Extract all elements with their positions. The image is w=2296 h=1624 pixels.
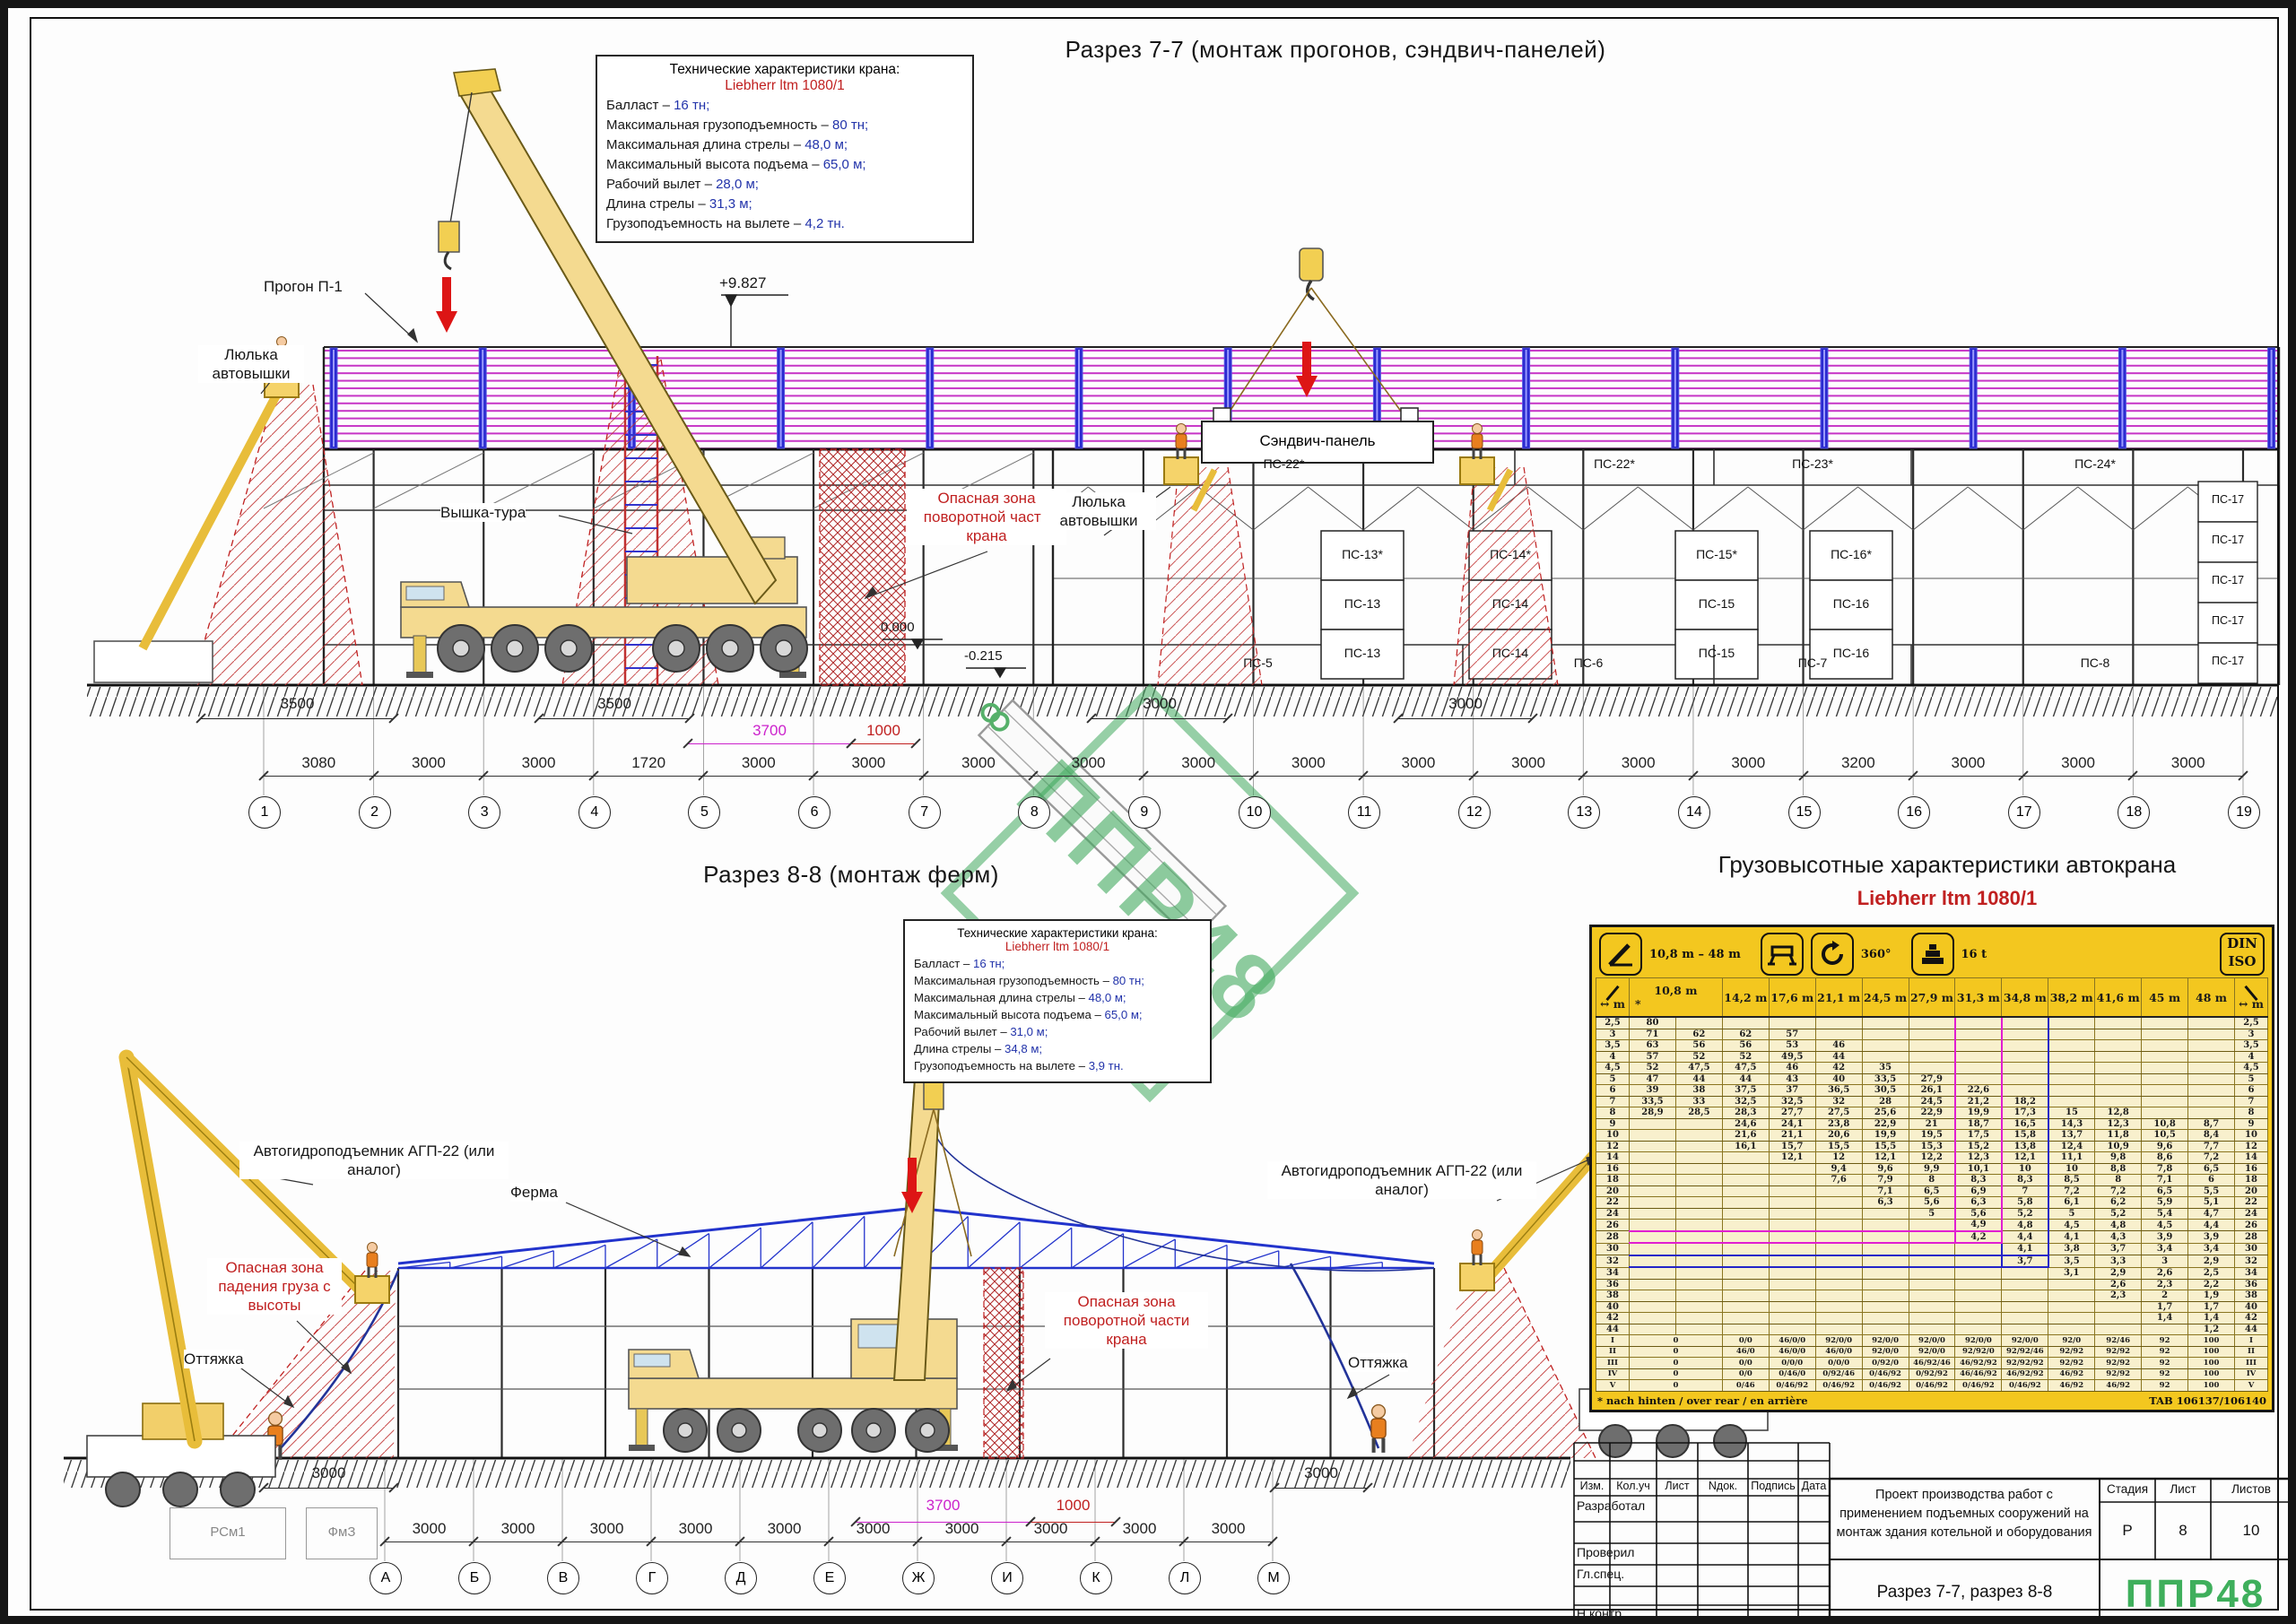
load-cell: 100 <box>2188 1380 2235 1392</box>
load-cell: 30,5 <box>1862 1085 1909 1097</box>
tb-col-4: Подпись <box>1748 1480 1798 1492</box>
load-cell <box>1955 1073 2002 1085</box>
load-cell: 0 <box>1630 1368 1723 1380</box>
specs-heading-88: Технические характеристики крана: <box>914 926 1201 940</box>
footing-rsm1: РСм1 <box>170 1507 286 1559</box>
axis77-2: 2 <box>359 796 391 829</box>
load-cell: 44 <box>1596 1324 1630 1335</box>
load-cell: 2,3 <box>2142 1279 2188 1290</box>
panel-bottom-3: ПС-8 <box>2055 656 2135 670</box>
panel-stack: ПС-14 <box>1469 596 1552 611</box>
load-cell: I <box>1596 1335 1630 1347</box>
load-cell: 38 <box>1596 1290 1630 1302</box>
agp-label-right: Автогидроподъемник АГП-22 (или аналог) <box>1267 1161 1536 1199</box>
boom-range-text: 10,8 m – 48 m <box>1649 948 1741 961</box>
load-cell: 43 <box>1769 1073 1815 1085</box>
load-cell: 46/92 <box>2048 1380 2095 1392</box>
panel-stack: ПС-15 <box>1675 596 1758 611</box>
load-table: ↔ m10,8 m*14,2 m17,6 m21,1 m24,5 m27,9 m… <box>1596 977 2268 1392</box>
load-cell: 92/92 <box>2095 1368 2142 1380</box>
load-cell: 47,5 <box>1675 1063 1722 1074</box>
dim88-3000r-label: 3000 <box>1274 1464 1368 1482</box>
load-cell <box>1862 1324 1909 1335</box>
load-cell: 33,5 <box>1630 1096 1676 1107</box>
load-cell <box>1630 1118 1676 1130</box>
load-cell <box>1955 1040 2002 1052</box>
spec-item: Балласт – 16 тн; <box>606 96 963 116</box>
dim77-3000a-label: 3000 <box>1091 695 1228 713</box>
load-cell: 15,2 <box>1955 1141 2002 1152</box>
chain88-label: 3000 <box>829 1520 918 1538</box>
load-cell: ↔ m <box>1596 978 1630 1018</box>
axis77-10: 10 <box>1239 796 1271 829</box>
load-cell: IV <box>1596 1368 1630 1380</box>
load-cell: 45 m <box>2142 978 2188 1018</box>
load-cell <box>1630 1130 1676 1142</box>
load-cell: 56 <box>1675 1040 1722 1052</box>
load-cell: 92 <box>2142 1368 2188 1380</box>
tb-sheets-label: Листов <box>2211 1482 2292 1496</box>
load-cell: 92/0/0 <box>1862 1335 1909 1347</box>
load-cell: 92/0 <box>2048 1335 2095 1347</box>
load-cell: 27,7 <box>1769 1107 1815 1119</box>
load-cell: 14 <box>2235 1152 2268 1164</box>
load-cell <box>1955 1324 2002 1335</box>
load-cell: 17,6 m <box>1769 978 1815 1018</box>
load-cell: V <box>1596 1380 1630 1392</box>
load-cell: IV <box>2235 1368 2268 1380</box>
load-cell: 0/46/92 <box>1909 1380 1955 1392</box>
load-cell <box>1862 1051 1909 1063</box>
panel-right: ПС-17 <box>2198 493 2257 506</box>
load-cell <box>2142 1324 2188 1335</box>
load-cell: 3,8 <box>2048 1243 2095 1255</box>
load-cell: 46 <box>1815 1040 1862 1052</box>
load-cell <box>1769 1243 1815 1255</box>
tb-logo: ППР48 <box>2100 1572 2292 1617</box>
load-cell: 34,8 m <box>2002 978 2048 1018</box>
load-cell: 22,9 <box>1862 1118 1909 1130</box>
load-cell: 92/92/0 <box>1955 1346 2002 1358</box>
specs-crane-name: Liebherr ltm 1080/1 <box>606 78 963 94</box>
load-cell <box>2188 1051 2235 1063</box>
load-cell <box>2142 1096 2188 1107</box>
load-cell: 46/92/92 <box>2002 1368 2048 1380</box>
tb-stage: Р <box>2100 1522 2155 1540</box>
load-cell: II <box>2235 1346 2268 1358</box>
axis88-Е: Е <box>813 1562 846 1594</box>
load-cell: 4,5 <box>2048 1220 2095 1231</box>
load-cell <box>2188 1096 2235 1107</box>
load-cell <box>1769 1185 1815 1197</box>
load-cell: 28 <box>2235 1231 2268 1244</box>
load-cell: 3,7 <box>2095 1243 2142 1255</box>
tb-sheet: 8 <box>2155 1522 2211 1540</box>
load-cell: 15,8 <box>2002 1130 2048 1142</box>
load-cell <box>2048 1017 2095 1029</box>
load-cell: 3,3 <box>2095 1255 2142 1268</box>
load-cell <box>1630 1324 1676 1335</box>
danger-fall-label: Опасная зона падения груза с высоты <box>207 1258 342 1315</box>
load-cell: 57 <box>1769 1029 1815 1040</box>
load-cell: 3,4 <box>2188 1243 2235 1255</box>
load-cell <box>1909 1017 1955 1029</box>
tb-col-5: Дата <box>1798 1480 1830 1492</box>
load-chart-icons: 10,8 m – 48 m 360° 16 t DIN ISO <box>1596 931 2268 977</box>
load-cell <box>1815 1243 1862 1255</box>
load-cell <box>2002 1085 2048 1097</box>
load-cell: 46/92 <box>2095 1380 2142 1392</box>
load-cell <box>2142 1017 2188 1029</box>
load-cell <box>1769 1324 1815 1335</box>
load-cell: 41,6 m <box>2095 978 2142 1018</box>
load-cell: 8,4 <box>2188 1130 2235 1142</box>
load-chart: 10,8 m – 48 m 360° 16 t DIN ISO ↔ m10,8 … <box>1589 925 2274 1412</box>
spec-item: Максимальный высота подъема – 65,0 м; <box>606 155 963 175</box>
load-cell: 30 <box>2235 1243 2268 1255</box>
chain77-label: 3000 <box>483 754 594 772</box>
load-cell: 36 <box>2235 1279 2268 1290</box>
load-cell <box>1769 1163 1815 1175</box>
tb-stage-label: Стадия <box>2100 1482 2155 1496</box>
load-cell: 2,6 <box>2095 1279 2142 1290</box>
load-chart-title: Грузовысотные характеристики автокрана <box>1649 851 2245 879</box>
load-cell: 3,9 <box>2188 1231 2235 1244</box>
load-cell: 5,6 <box>1909 1197 1955 1209</box>
load-cell <box>1909 1243 1955 1255</box>
load-cell <box>2095 1029 2142 1040</box>
load-cell: 6 <box>2188 1175 2235 1186</box>
load-cell: 7,7 <box>2188 1141 2235 1152</box>
load-cell <box>2142 1107 2188 1119</box>
chain88-label: 3000 <box>474 1520 562 1538</box>
load-cell <box>2048 1313 2095 1324</box>
load-cell: 11,8 <box>2095 1130 2142 1142</box>
load-cell: 4,9 <box>1955 1220 2002 1231</box>
load-cell: 32,5 <box>1722 1096 1769 1107</box>
load-cell: 100 <box>2188 1346 2235 1358</box>
load-cell <box>2095 1324 2142 1335</box>
load-cell <box>2188 1029 2235 1040</box>
dim77-3000b-line <box>1398 718 1533 719</box>
load-cell <box>1675 1267 1722 1279</box>
load-cell: 7,2 <box>2095 1185 2142 1197</box>
load-cell: 3,5 <box>2048 1255 2095 1268</box>
load-cell <box>2048 1085 2095 1097</box>
axis88-Б: Б <box>458 1562 491 1594</box>
load-cell: 71 <box>1630 1029 1676 1040</box>
load-cell <box>1769 1197 1815 1209</box>
load-cell <box>1722 1290 1769 1302</box>
load-cell <box>2095 1096 2142 1107</box>
load-cell <box>1862 1255 1909 1268</box>
load-cell: 20 <box>1596 1185 1630 1197</box>
load-cell: 12,2 <box>1909 1152 1955 1164</box>
load-cell <box>2188 1107 2235 1119</box>
panel-right: ПС-17 <box>2198 574 2257 586</box>
load-cell <box>1675 1197 1722 1209</box>
load-cell <box>1862 1220 1909 1231</box>
load-cell: 92/92 <box>2095 1358 2142 1369</box>
load-cell: 8,7 <box>2188 1118 2235 1130</box>
load-cell: 26 <box>2235 1220 2268 1231</box>
load-cell: 4,3 <box>2095 1231 2142 1244</box>
telescopic-boom-icon <box>1599 933 1642 976</box>
tb-sheets: 10 <box>2211 1522 2292 1540</box>
axis77-14: 14 <box>1678 796 1710 829</box>
load-cell <box>1815 1301 1862 1313</box>
panel-top-3: ПС-24* <box>2055 456 2135 471</box>
footing-fm3: ФмЗ <box>306 1507 378 1559</box>
load-cell: 21,2 <box>1955 1096 2002 1107</box>
load-cell: 12,3 <box>1955 1152 2002 1164</box>
specs-heading: Технические характеристики крана: <box>606 62 963 78</box>
load-cell: 9 <box>1596 1118 1630 1130</box>
load-cell <box>2095 1301 2142 1313</box>
load-cell: 26,1 <box>1909 1085 1955 1097</box>
load-cell: 0/46/92 <box>1955 1380 2002 1392</box>
tb-col-0: Изм. <box>1574 1480 1610 1492</box>
load-cell <box>1722 1243 1769 1255</box>
load-cell <box>1815 1208 1862 1220</box>
load-cell: 12,1 <box>1769 1152 1815 1164</box>
note-left: * nach hinten / over rear / en arrière <box>1597 1394 1808 1407</box>
specs-items-77: Балласт – 16 тн;Максимальная грузоподъем… <box>606 96 963 234</box>
tb-role-1: Проверил <box>1577 1545 1634 1559</box>
load-cell: 21,6 <box>1722 1130 1769 1142</box>
load-cell: 37,5 <box>1722 1085 1769 1097</box>
load-cell: 22 <box>1596 1197 1630 1209</box>
load-cell <box>1909 1255 1955 1268</box>
load-cell <box>2188 1085 2235 1097</box>
axis88-И: И <box>991 1562 1023 1594</box>
load-cell <box>2095 1085 2142 1097</box>
load-cell <box>2095 1051 2142 1063</box>
load-cell: 6,5 <box>2142 1185 2188 1197</box>
load-cell: 0/0 <box>1722 1335 1769 1347</box>
tb-sheet-label: Лист <box>2155 1482 2211 1496</box>
load-cell <box>1769 1313 1815 1324</box>
load-cell: 0/92/46 <box>1815 1368 1862 1380</box>
load-cell: 10 <box>2002 1163 2048 1175</box>
spec-item: Максимальная грузоподъемность – 80 тн; <box>606 116 963 135</box>
axis77-8: 8 <box>1018 796 1050 829</box>
load-cell <box>2142 1040 2188 1052</box>
load-cell: 9,9 <box>1909 1163 1955 1175</box>
load-cell <box>1815 1029 1862 1040</box>
load-cell <box>1675 1152 1722 1164</box>
load-cell: 1,2 <box>2188 1324 2235 1335</box>
load-cell: 12 <box>1596 1141 1630 1152</box>
dim88-3000l-line <box>264 1488 394 1489</box>
load-cell: 0 <box>1630 1380 1723 1392</box>
load-cell: V <box>2235 1380 2268 1392</box>
load-cell: 7,2 <box>2188 1152 2235 1164</box>
axis88-Г: Г <box>636 1562 668 1594</box>
load-cell: 3,5 <box>2235 1040 2268 1052</box>
load-cell: 34 <box>2235 1267 2268 1279</box>
load-cell <box>2142 1085 2188 1097</box>
load-cell: 92/0/0 <box>1955 1335 2002 1347</box>
counterweight-icon <box>1911 933 1954 976</box>
load-cell: 17,3 <box>2002 1107 2048 1119</box>
load-cell: 62 <box>1675 1029 1722 1040</box>
load-cell <box>1675 1118 1722 1130</box>
chain77-label: 3000 <box>703 754 813 772</box>
load-cell <box>1909 1301 1955 1313</box>
load-cell <box>1675 1290 1722 1302</box>
load-cell <box>1675 1255 1722 1268</box>
load-cell: 44 <box>1722 1073 1769 1085</box>
chain88-label: 3000 <box>918 1520 1006 1538</box>
specs-crane-name-88: Liebherr ltm 1080/1 <box>914 940 1201 953</box>
panel-right: ПС-17 <box>2198 534 2257 546</box>
drawing-sheet: ППР48 Разрез 7-7 (монтаж прогонов, сэндв… <box>0 0 2296 1624</box>
load-chart-note: * nach hinten / over rear / en arrière T… <box>1596 1392 2268 1408</box>
crane-specs-77: Технические характеристики крана: Liebhe… <box>596 55 974 243</box>
axis77-12: 12 <box>1458 796 1491 829</box>
tb-role-0: Разработал <box>1577 1498 1645 1513</box>
load-cell <box>1955 1279 2002 1290</box>
load-cell: 62 <box>1722 1029 1769 1040</box>
load-cell: 32 <box>2235 1255 2268 1268</box>
panel-stack: ПС-13* <box>1321 547 1404 561</box>
load-cell <box>2142 1063 2188 1074</box>
load-cell: 47 <box>1630 1073 1676 1085</box>
load-cell: 7,8 <box>2142 1163 2188 1175</box>
load-cell: 46/0/0 <box>1769 1346 1815 1358</box>
load-cell: 35 <box>1862 1063 1909 1074</box>
load-cell: 15,7 <box>1769 1141 1815 1152</box>
load-cell: 19,9 <box>1955 1107 2002 1119</box>
load-cell <box>1769 1279 1815 1290</box>
load-cell: 28 <box>1596 1231 1630 1244</box>
danger-crane-label-88: Опасная зона поворотной части крана <box>1045 1292 1208 1349</box>
load-cell <box>1722 1017 1769 1029</box>
load-cell <box>2048 1063 2095 1074</box>
din-iso-badge: DIN ISO <box>2220 933 2265 976</box>
load-cell: 0/46/92 <box>1862 1368 1909 1380</box>
load-cell <box>2095 1063 2142 1074</box>
chain88-label: 3000 <box>562 1520 651 1538</box>
axis77-15: 15 <box>1788 796 1821 829</box>
load-cell <box>1722 1197 1769 1209</box>
agp-label-left: Автогидроподъемник АГП-22 (или аналог) <box>239 1142 509 1179</box>
axis77-16: 16 <box>1898 796 1930 829</box>
load-cell: 6 <box>1596 1085 1630 1097</box>
load-cell <box>1862 1279 1909 1290</box>
load-cell: III <box>2235 1358 2268 1369</box>
load-cell: 4,5 <box>1596 1063 1630 1074</box>
load-cell: 3,5 <box>1596 1040 1630 1052</box>
load-cell: 1,7 <box>2188 1301 2235 1313</box>
chain77-label: 3000 <box>924 754 1034 772</box>
load-cell <box>2002 1029 2048 1040</box>
load-cell: 7,1 <box>1862 1185 1909 1197</box>
load-cell <box>1862 1313 1909 1324</box>
load-cell: 16,5 <box>2002 1118 2048 1130</box>
elev-top-label: +9.827 <box>719 274 766 292</box>
dim77-1000-label: 1000 <box>851 722 916 740</box>
load-cell: 2,9 <box>2095 1267 2142 1279</box>
load-cell: 8 <box>1909 1175 1955 1186</box>
load-cell: 37 <box>1769 1085 1815 1097</box>
load-cell <box>2188 1063 2235 1074</box>
load-cell: 24 <box>1596 1208 1630 1220</box>
load-cell <box>1769 1255 1815 1268</box>
axis77-9: 9 <box>1128 796 1161 829</box>
load-cell: 2,3 <box>2095 1290 2142 1302</box>
load-cell: 46 <box>1769 1063 1815 1074</box>
load-cell: 20,6 <box>1815 1130 1862 1142</box>
load-cell: 2,2 <box>2188 1279 2235 1290</box>
load-cell: 12,3 <box>2095 1118 2142 1130</box>
load-cell: 14,3 <box>2048 1118 2095 1130</box>
load-cell <box>1862 1231 1909 1244</box>
load-cell <box>1722 1313 1769 1324</box>
spec-item: Грузоподъемность на вылете – 4,2 тн. <box>606 214 963 234</box>
load-cell <box>1675 1324 1722 1335</box>
load-cell <box>2188 1017 2235 1029</box>
load-cell: 10 <box>1596 1130 1630 1142</box>
load-cell <box>1630 1197 1676 1209</box>
load-cell <box>1675 1279 1722 1290</box>
load-cell <box>1955 1029 2002 1040</box>
load-cell: 4,1 <box>2048 1231 2095 1244</box>
chain77-label: 3000 <box>2023 754 2134 772</box>
load-cell: 4,1 <box>2002 1243 2048 1255</box>
panel-stack: ПС-13 <box>1321 646 1404 660</box>
dim77-1000-line <box>851 743 916 744</box>
load-cell <box>2002 1063 2048 1074</box>
load-cell: 92 <box>2142 1380 2188 1392</box>
tb-doc-title: Разрез 7-7, разрез 8-8 <box>1830 1583 2100 1602</box>
chain77-label: 3000 <box>1583 754 1693 772</box>
note-right: TAB 106137/106140 <box>2149 1394 2266 1407</box>
load-cell: 63 <box>1630 1040 1676 1052</box>
chain77-label: 3000 <box>1363 754 1474 772</box>
dim77-3700-label: 3700 <box>688 722 851 740</box>
load-cell <box>1955 1255 2002 1268</box>
load-cell: 28,9 <box>1630 1107 1676 1119</box>
panel-bottom-0: ПС-5 <box>1218 656 1299 670</box>
load-cell <box>2048 1324 2095 1335</box>
load-cell: 6,9 <box>1955 1185 2002 1197</box>
load-cell <box>1722 1255 1769 1268</box>
tb-col-2: Лист <box>1657 1480 1698 1492</box>
load-cell <box>1909 1051 1955 1063</box>
load-cell <box>1769 1267 1815 1279</box>
load-cell: 19,5 <box>1909 1130 1955 1142</box>
load-cell: 1,7 <box>2142 1301 2188 1313</box>
load-cell <box>1955 1017 2002 1029</box>
load-cell <box>1862 1243 1909 1255</box>
load-cell: 40 <box>1596 1301 1630 1313</box>
load-cell: 5 <box>1909 1208 1955 1220</box>
load-cell <box>2048 1096 2095 1107</box>
load-cell: 44 <box>1815 1051 1862 1063</box>
axis88-М: М <box>1257 1562 1290 1594</box>
axis77-7: 7 <box>909 796 941 829</box>
load-table-host: ↔ m10,8 m*14,2 m17,6 m21,1 m24,5 m27,9 m… <box>1596 977 2268 1392</box>
chain77-label: 1720 <box>594 754 704 772</box>
load-cell <box>1909 1267 1955 1279</box>
load-cell <box>1769 1290 1815 1302</box>
axis77-11: 11 <box>1348 796 1380 829</box>
load-cell <box>1862 1301 1909 1313</box>
load-cell <box>1815 1220 1862 1231</box>
load-cell: 92/92 <box>2095 1346 2142 1358</box>
